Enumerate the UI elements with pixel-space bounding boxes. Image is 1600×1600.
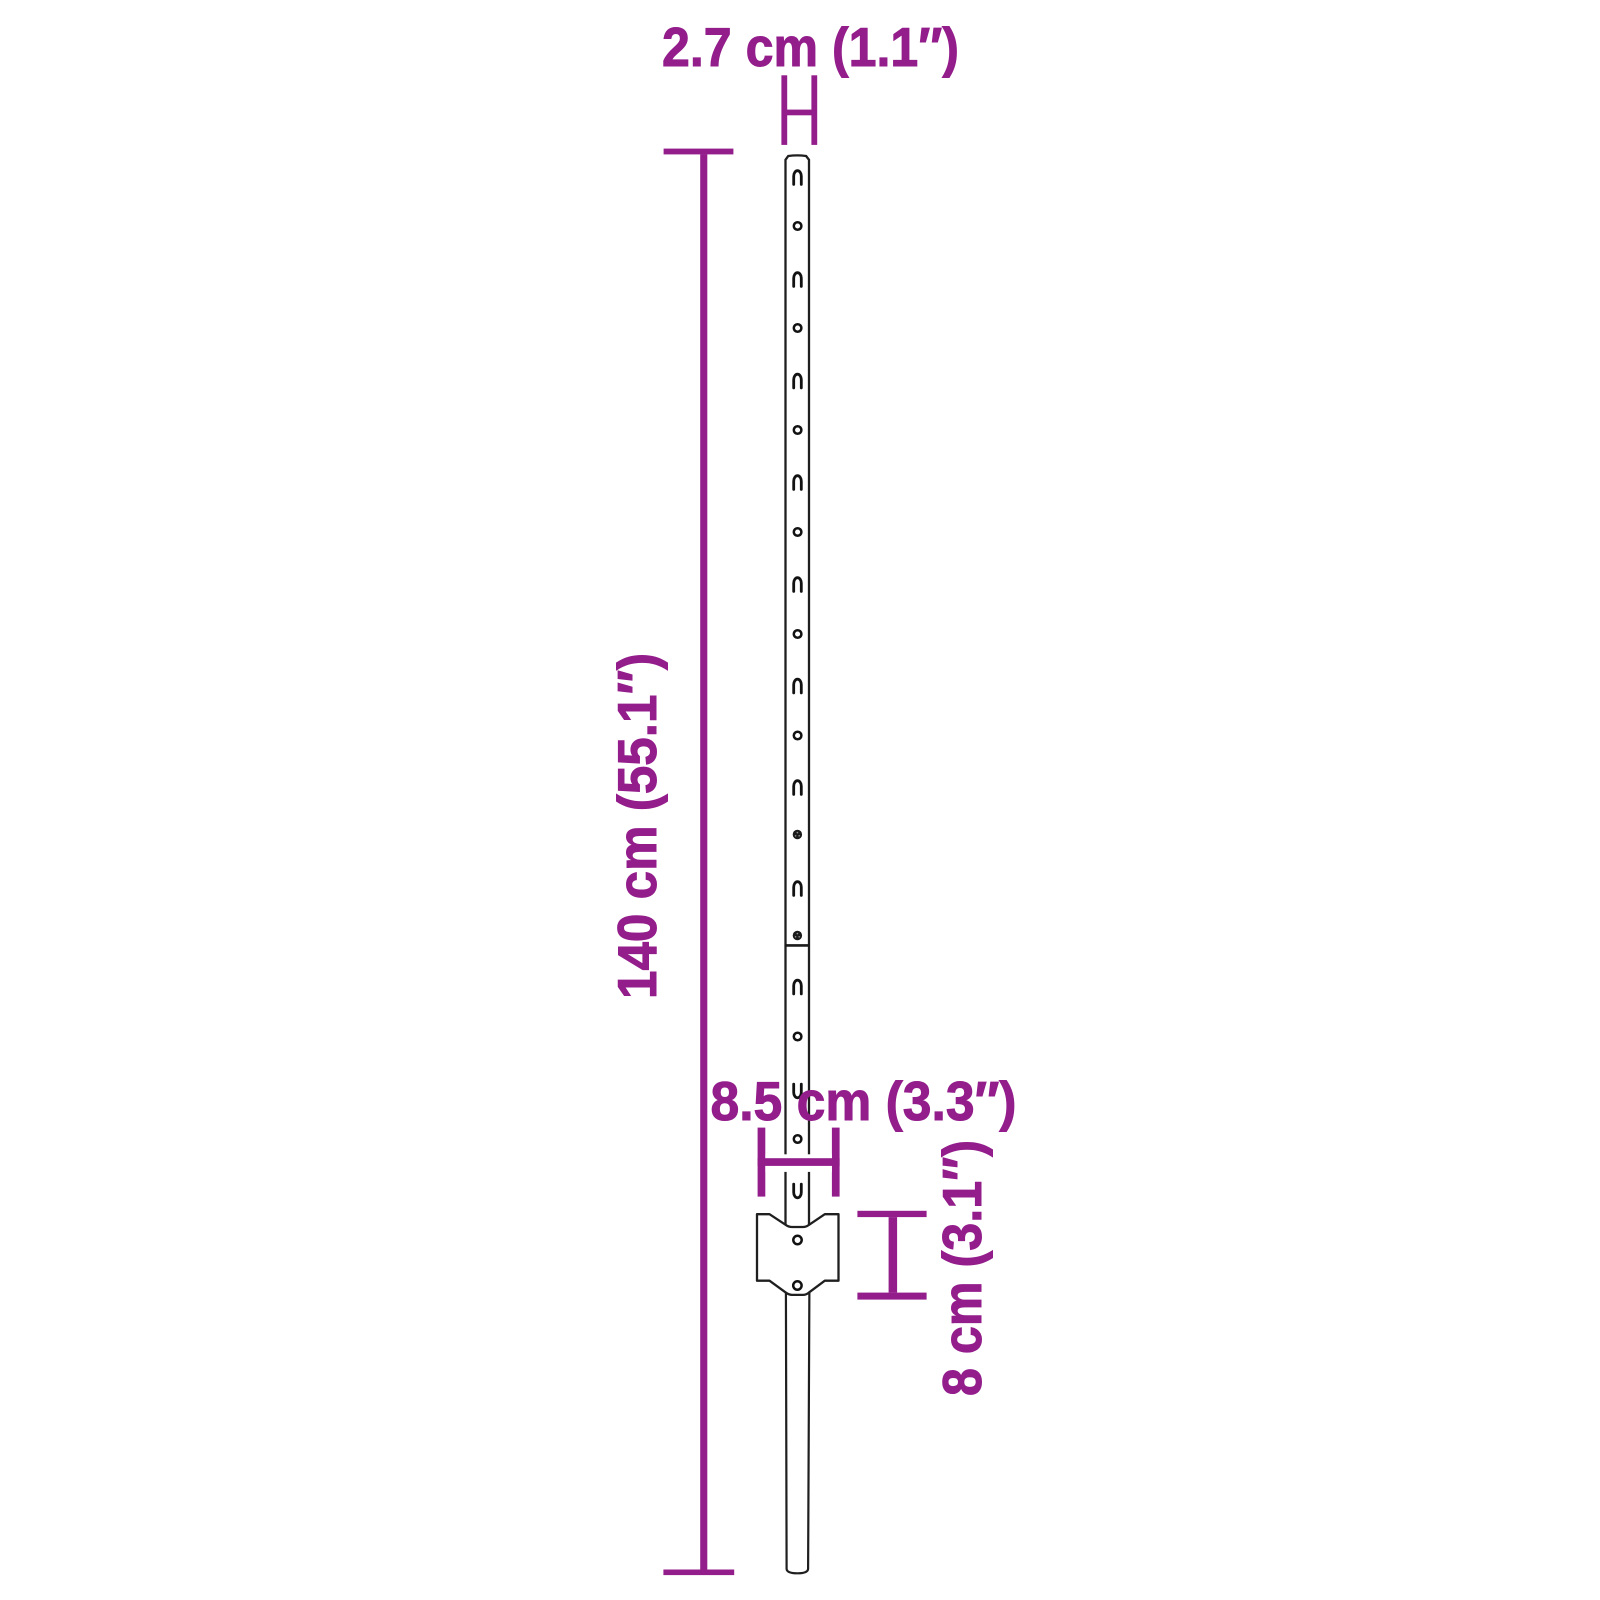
svg-text:8 cm (3.1″): 8 cm (3.1″) — [931, 1140, 993, 1396]
svg-text:2.7 cm (1.1″): 2.7 cm (1.1″) — [662, 16, 959, 78]
svg-text:8.5 cm (3.3″): 8.5 cm (3.3″) — [711, 1070, 1017, 1132]
svg-text:140 cm (55.1″): 140 cm (55.1″) — [606, 653, 668, 999]
